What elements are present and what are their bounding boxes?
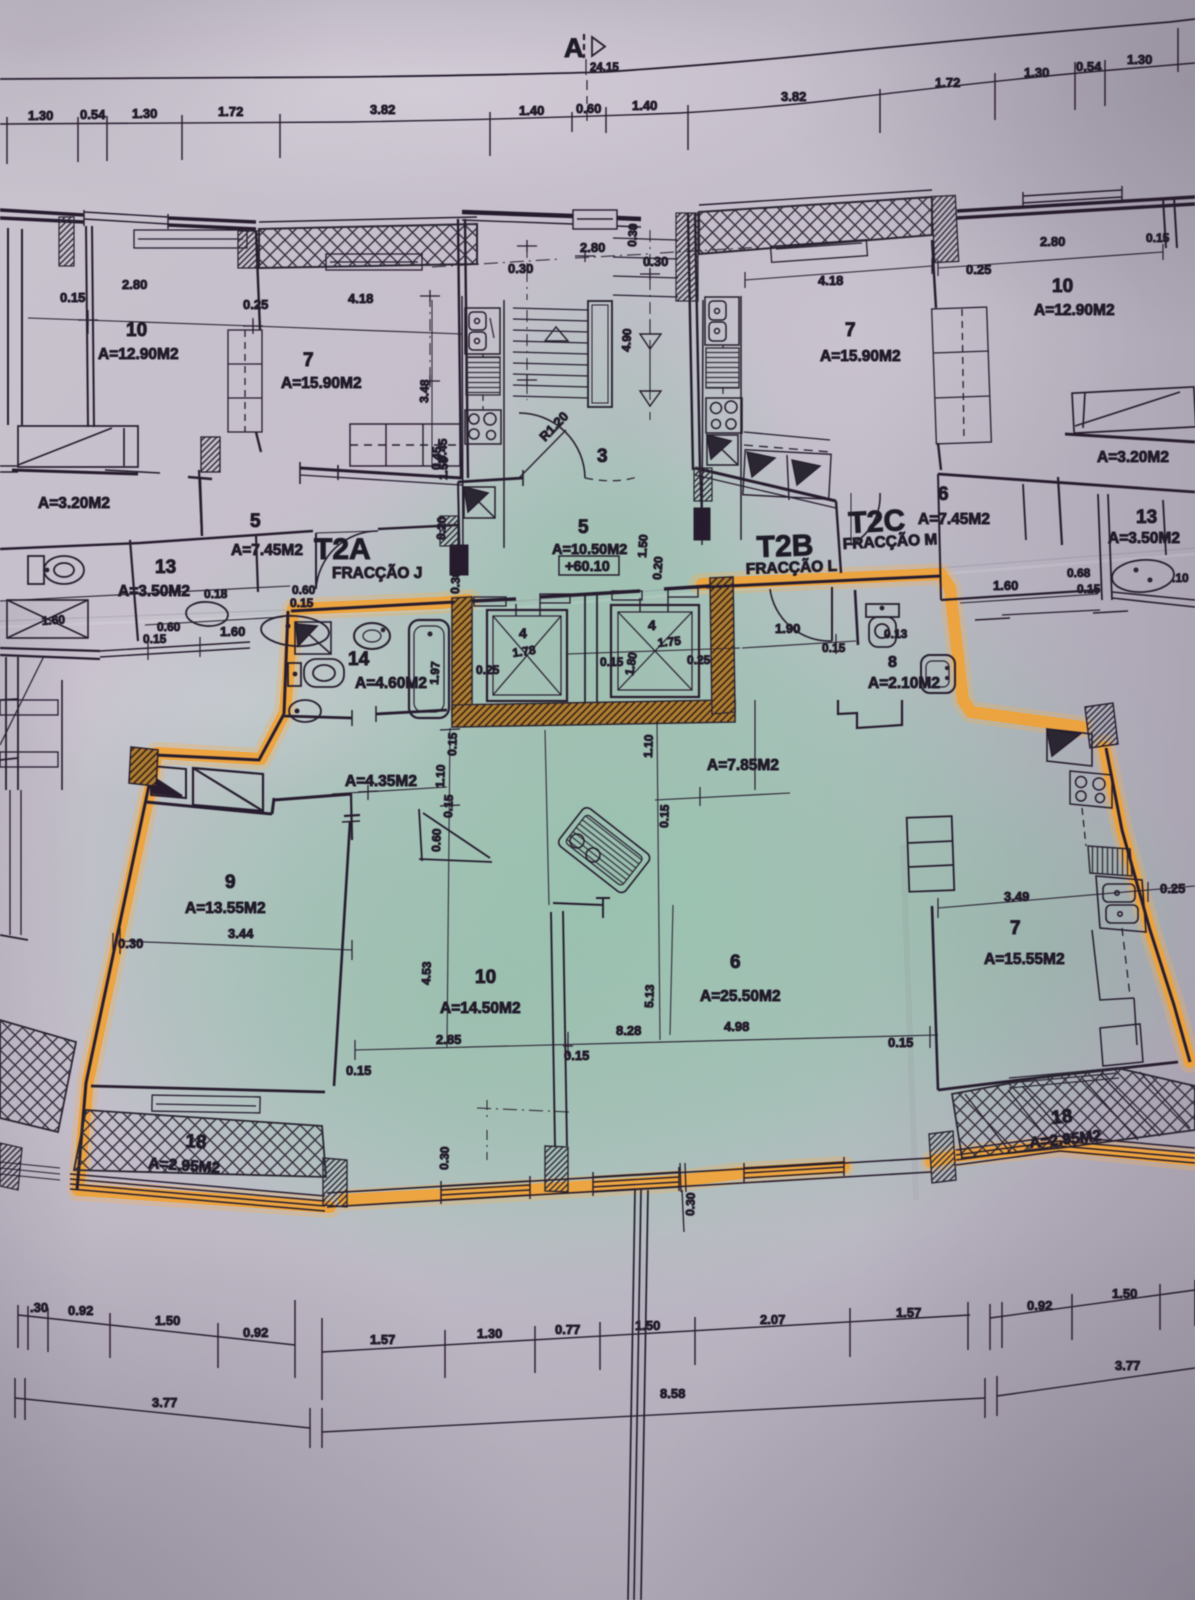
svg-text:0.25: 0.25 bbox=[243, 297, 268, 312]
svg-text:0.15: 0.15 bbox=[657, 804, 672, 828]
svg-text:7: 7 bbox=[1010, 918, 1021, 939]
svg-text:4.53: 4.53 bbox=[419, 961, 434, 985]
svg-text:A=12.90M2: A=12.90M2 bbox=[98, 346, 179, 363]
svg-text:6: 6 bbox=[730, 952, 741, 973]
svg-text:0.25: 0.25 bbox=[476, 663, 500, 677]
svg-text:1.72: 1.72 bbox=[935, 75, 960, 90]
svg-text:8: 8 bbox=[888, 654, 897, 671]
svg-text:A=2.10M2: A=2.10M2 bbox=[868, 675, 940, 692]
svg-text:0.30: 0.30 bbox=[118, 936, 143, 951]
svg-text:0.54: 0.54 bbox=[80, 107, 106, 122]
svg-text:0.92: 0.92 bbox=[68, 1303, 93, 1318]
svg-text:1.30: 1.30 bbox=[28, 108, 53, 123]
svg-text:A=3.50M2: A=3.50M2 bbox=[1108, 530, 1180, 547]
svg-text:1.30: 1.30 bbox=[1024, 65, 1049, 80]
svg-text:0.15: 0.15 bbox=[290, 596, 314, 610]
svg-text:14: 14 bbox=[348, 649, 370, 670]
svg-text:18: 18 bbox=[1050, 1106, 1073, 1129]
svg-text:1.57: 1.57 bbox=[370, 1332, 395, 1347]
svg-text:0.45: 0.45 bbox=[429, 446, 444, 470]
svg-text:1.30: 1.30 bbox=[1127, 52, 1152, 67]
svg-text:A=3.20M2: A=3.20M2 bbox=[38, 495, 110, 512]
svg-text:5: 5 bbox=[250, 511, 261, 532]
svg-text:1.90: 1.90 bbox=[775, 621, 800, 636]
svg-text:0.15: 0.15 bbox=[600, 655, 624, 669]
svg-text:A=25.50M2: A=25.50M2 bbox=[700, 988, 781, 1005]
svg-text:A=7.45M2: A=7.45M2 bbox=[231, 542, 303, 559]
svg-text:A=15.90M2: A=15.90M2 bbox=[281, 375, 362, 392]
svg-text:7: 7 bbox=[303, 350, 314, 371]
svg-text:1.60: 1.60 bbox=[993, 578, 1018, 593]
svg-text:0.15: 0.15 bbox=[60, 290, 85, 305]
svg-text:2.85: 2.85 bbox=[436, 1032, 461, 1047]
svg-text:FRACÇÃO L: FRACÇÃO L bbox=[746, 557, 838, 578]
svg-text:3.82: 3.82 bbox=[781, 89, 806, 104]
svg-text:5.13: 5.13 bbox=[642, 984, 657, 1008]
svg-text:8.28: 8.28 bbox=[616, 1023, 641, 1038]
svg-text:A=7.85M2: A=7.85M2 bbox=[707, 757, 779, 774]
svg-text:0.92: 0.92 bbox=[243, 1325, 268, 1340]
svg-text:2.07: 2.07 bbox=[760, 1312, 785, 1327]
svg-text:24.15: 24.15 bbox=[590, 62, 619, 74]
svg-text:A=4.60M2: A=4.60M2 bbox=[355, 675, 427, 692]
svg-text:A=13.55M2: A=13.55M2 bbox=[185, 900, 266, 917]
svg-text:1.10: 1.10 bbox=[641, 734, 656, 758]
svg-text:A=7.45M2: A=7.45M2 bbox=[918, 511, 990, 528]
svg-text:4.90: 4.90 bbox=[619, 328, 634, 352]
svg-text:1.30: 1.30 bbox=[477, 1326, 502, 1341]
svg-text:1.40: 1.40 bbox=[632, 98, 657, 113]
svg-text:A=4.35M2: A=4.35M2 bbox=[345, 773, 417, 790]
svg-text:A=12.90M2: A=12.90M2 bbox=[1034, 302, 1115, 319]
svg-text:1.97: 1.97 bbox=[427, 661, 443, 686]
svg-text:0.60: 0.60 bbox=[576, 101, 601, 116]
svg-text:0.15: 0.15 bbox=[143, 632, 167, 646]
svg-text:1.10: 1.10 bbox=[433, 764, 448, 788]
svg-text:0.77: 0.77 bbox=[555, 1322, 580, 1337]
svg-text:10: 10 bbox=[126, 320, 147, 341]
svg-text:FRACÇÃO J: FRACÇÃO J bbox=[332, 564, 422, 582]
svg-text:5: 5 bbox=[578, 517, 589, 538]
svg-text:0.68: 0.68 bbox=[1067, 566, 1091, 580]
svg-text:A: A bbox=[564, 33, 584, 63]
svg-text:0.54: 0.54 bbox=[1076, 59, 1102, 74]
svg-text:0.20: 0.20 bbox=[434, 516, 449, 540]
svg-text:A=14.50M2: A=14.50M2 bbox=[440, 1000, 521, 1017]
svg-text:0.25: 0.25 bbox=[687, 653, 711, 667]
svg-text:0.60: 0.60 bbox=[429, 828, 444, 852]
svg-text:T2A: T2A bbox=[314, 533, 371, 566]
svg-text:0.30: 0.30 bbox=[437, 1146, 452, 1170]
svg-text:1.40: 1.40 bbox=[519, 103, 544, 118]
svg-text:1.57: 1.57 bbox=[896, 1305, 921, 1320]
svg-text:7: 7 bbox=[845, 320, 856, 341]
svg-text:0.30: 0.30 bbox=[683, 1192, 698, 1216]
svg-text:0.30: 0.30 bbox=[508, 261, 533, 276]
svg-text:10: 10 bbox=[1052, 276, 1073, 297]
svg-text:8.58: 8.58 bbox=[660, 1386, 685, 1401]
svg-text:13: 13 bbox=[155, 557, 176, 578]
svg-text:4.18: 4.18 bbox=[348, 291, 373, 306]
svg-text:.10: .10 bbox=[1172, 571, 1189, 585]
svg-text:3: 3 bbox=[597, 446, 608, 467]
svg-text:0.15: 0.15 bbox=[445, 732, 460, 756]
svg-text:0.13: 0.13 bbox=[884, 627, 908, 641]
svg-text:A=3.20M2: A=3.20M2 bbox=[1097, 449, 1169, 466]
svg-text:3.77: 3.77 bbox=[152, 1395, 177, 1410]
svg-text:2.80: 2.80 bbox=[1040, 234, 1065, 249]
svg-text:3.77: 3.77 bbox=[1115, 1358, 1140, 1373]
svg-text:A=15.55M2: A=15.55M2 bbox=[984, 951, 1065, 968]
svg-text:1.50: 1.50 bbox=[1112, 1286, 1137, 1301]
svg-text:0.18: 0.18 bbox=[204, 587, 228, 601]
svg-text:9: 9 bbox=[225, 872, 236, 893]
svg-text:0.15: 0.15 bbox=[441, 794, 456, 818]
svg-text:18: 18 bbox=[185, 1131, 208, 1153]
svg-text:0.20: 0.20 bbox=[650, 556, 666, 581]
svg-text:10: 10 bbox=[475, 967, 496, 988]
svg-text:1.60: 1.60 bbox=[220, 624, 245, 639]
svg-text:1.72: 1.72 bbox=[218, 104, 243, 119]
svg-text:1.75: 1.75 bbox=[657, 634, 682, 650]
svg-text:1.60: 1.60 bbox=[41, 612, 66, 628]
svg-text:0.30: 0.30 bbox=[643, 254, 668, 269]
svg-text:+60.10: +60.10 bbox=[565, 559, 610, 575]
svg-text:A=15.90M2: A=15.90M2 bbox=[820, 348, 901, 365]
svg-text:2.80: 2.80 bbox=[122, 277, 147, 292]
svg-text:0.60: 0.60 bbox=[292, 583, 316, 597]
svg-text:1.50: 1.50 bbox=[155, 1313, 180, 1328]
svg-text:0.92: 0.92 bbox=[1027, 1298, 1052, 1313]
svg-text:13: 13 bbox=[1136, 507, 1157, 528]
svg-text:4.98: 4.98 bbox=[724, 1019, 749, 1034]
svg-text:1.30: 1.30 bbox=[132, 106, 157, 121]
svg-text:.30: .30 bbox=[30, 1300, 48, 1315]
svg-text:4: 4 bbox=[519, 625, 527, 641]
svg-text:3.44: 3.44 bbox=[228, 926, 254, 941]
svg-text:0.15: 0.15 bbox=[346, 1063, 371, 1078]
svg-text:0.30: 0.30 bbox=[448, 570, 463, 594]
svg-text:4.18: 4.18 bbox=[818, 273, 843, 288]
svg-text:2.80: 2.80 bbox=[580, 240, 605, 255]
svg-text:0.30: 0.30 bbox=[625, 223, 640, 247]
svg-text:3.82: 3.82 bbox=[370, 102, 395, 117]
svg-text:1.50: 1.50 bbox=[635, 534, 651, 559]
svg-text:4: 4 bbox=[648, 617, 656, 633]
svg-text:0.15: 0.15 bbox=[1146, 231, 1170, 245]
svg-text:0.15: 0.15 bbox=[888, 1035, 913, 1050]
